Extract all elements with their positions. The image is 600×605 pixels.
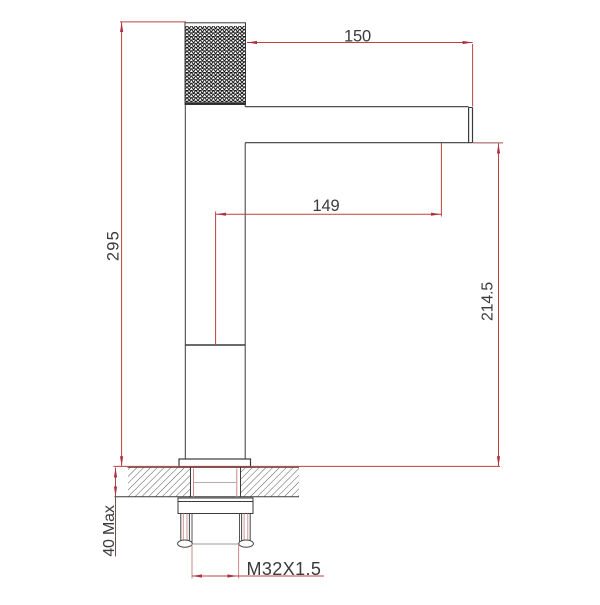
svg-text:M32X1.5: M32X1.5	[247, 559, 322, 579]
svg-text:214.5: 214.5	[480, 282, 497, 321]
svg-text:150: 150	[344, 28, 371, 46]
svg-text:295: 295	[105, 230, 123, 261]
svg-text:149: 149	[313, 197, 340, 215]
svg-text:40 Max: 40 Max	[101, 505, 118, 556]
